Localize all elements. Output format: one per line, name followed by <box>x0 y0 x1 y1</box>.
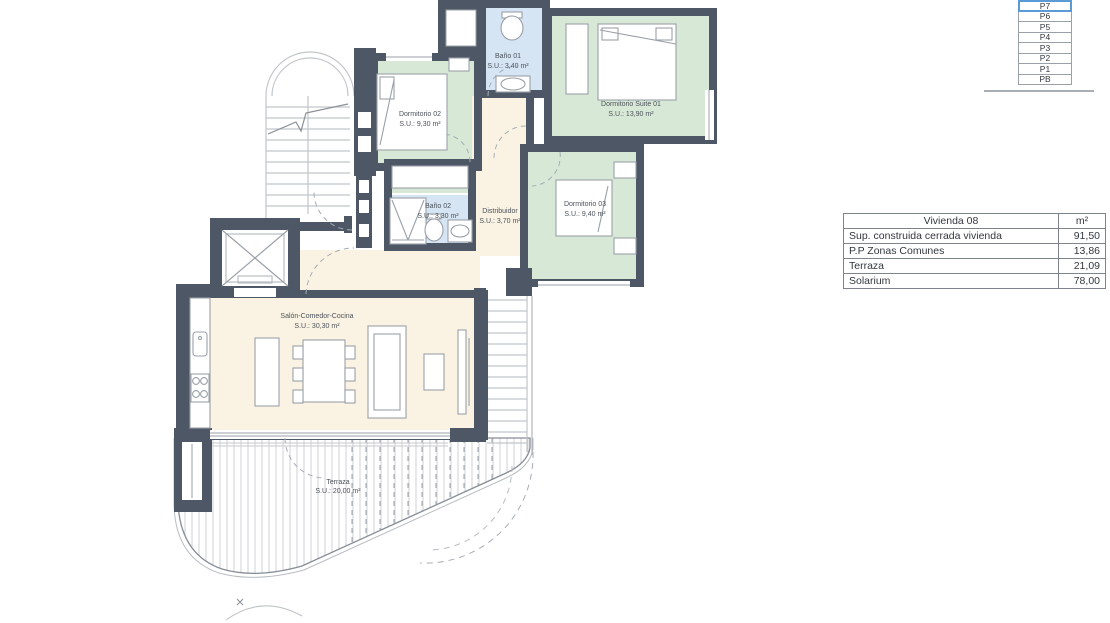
ground-line <box>984 90 1094 92</box>
floor-plan: Dormitorio 02 S.U.: 9,30 m² Baño 01 S.U.… <box>0 0 1110 623</box>
label-dorm03-name: Dormitorio 03 <box>564 201 606 208</box>
shower-bano02 <box>390 198 426 244</box>
label-distribuidor-name: Distribuidor <box>482 208 518 215</box>
bed-dorm03 <box>556 180 612 236</box>
sink-bano02 <box>448 220 472 242</box>
label-salon-area: S.U.: 30,30 m² <box>294 323 340 330</box>
terrace <box>174 438 533 577</box>
kitchen-counter <box>190 298 210 428</box>
label-bano01-area: S.U.: 3,40 m² <box>487 63 529 70</box>
label-bano02-name: Baño 02 <box>425 203 451 210</box>
nightstand-dorm02 <box>449 58 469 71</box>
sink-bano01 <box>496 76 530 92</box>
label-dorm02-name: Dormitorio 02 <box>399 111 441 118</box>
dining-table <box>293 340 355 403</box>
kitchen-island <box>255 338 279 406</box>
level-item-pb[interactable]: PB <box>1018 74 1072 86</box>
area-table: Vivienda 08 m² Sup. construida cerrada v… <box>843 213 1106 289</box>
label-salon-name: Salón-Comedor-Cocina <box>280 313 353 320</box>
label-bano02-area: S.U.: 3,30 m² <box>417 213 459 220</box>
wardrobe-suite01 <box>566 24 588 94</box>
closet-dorm02 <box>392 166 468 188</box>
terrace-outline <box>178 438 530 573</box>
kitchen-sink <box>193 332 207 356</box>
coffee-table <box>424 354 444 390</box>
label-suite01-area: S.U.: 13,90 m² <box>608 111 654 118</box>
label-terraza-area: S.U.: 20,00 m² <box>315 488 361 495</box>
label-dorm02-area: S.U.: 9,30 m² <box>399 121 441 128</box>
row-value: 13,86 <box>1059 244 1106 259</box>
row-value: 91,50 <box>1059 229 1106 244</box>
table-row: Sup. construida cerrada vivienda 91,50 <box>844 229 1106 244</box>
level-selector: P7 P6 P5 P4 P3 P2 P1 PB <box>1018 1 1072 85</box>
table-row: Solarium 78,00 <box>844 274 1106 289</box>
row-label: Sup. construida cerrada vivienda <box>844 229 1059 244</box>
bed-suite01 <box>598 24 676 100</box>
row-label: Terraza <box>844 259 1059 274</box>
label-dorm03-area: S.U.: 9,40 m² <box>564 211 606 218</box>
table-row: Terraza 21,09 <box>844 259 1106 274</box>
kitchen-stove <box>191 374 209 402</box>
sofa <box>368 326 406 418</box>
table-unit: m² <box>1059 214 1106 229</box>
row-value: 78,00 <box>1059 274 1106 289</box>
table-title: Vivienda 08 <box>844 214 1059 229</box>
table-row-header: Vivienda 08 m² <box>844 214 1106 229</box>
toilet-bano01 <box>501 12 523 40</box>
row-label: P.P Zonas Comunes <box>844 244 1059 259</box>
table-row: P.P Zonas Comunes 13,86 <box>844 244 1106 259</box>
north-mark <box>226 599 302 620</box>
label-terraza-name: Terraza <box>326 479 349 486</box>
level-item-p7[interactable]: P7 <box>1018 0 1072 12</box>
label-suite01-name: Dormitorio Suite 01 <box>601 101 661 108</box>
row-value: 21,09 <box>1059 259 1106 274</box>
room-hall <box>300 250 480 296</box>
label-bano01-name: Baño 01 <box>495 53 521 60</box>
row-label: Solarium <box>844 274 1059 289</box>
label-distribuidor-area: S.U.: 3,70 m² <box>479 218 521 225</box>
exterior-stair <box>487 296 532 455</box>
